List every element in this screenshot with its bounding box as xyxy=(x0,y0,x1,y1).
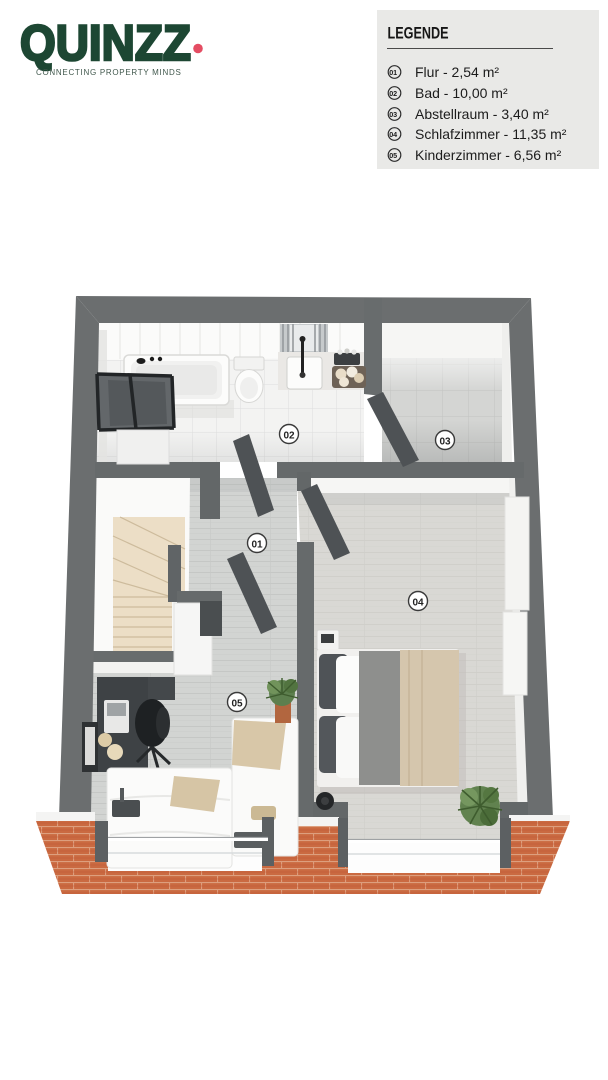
svg-text:05: 05 xyxy=(231,699,243,710)
svg-text:05: 05 xyxy=(389,151,397,160)
svg-text:Bad - 10,00 m²: Bad - 10,00 m² xyxy=(415,85,508,101)
svg-text:Kinderzimmer - 6,56 m²: Kinderzimmer - 6,56 m² xyxy=(415,147,562,163)
svg-text:02: 02 xyxy=(283,431,295,442)
svg-text:CONNECTING PROPERTY MINDS: CONNECTING PROPERTY MINDS xyxy=(36,68,182,77)
svg-text:LEGENDE: LEGENDE xyxy=(388,25,449,43)
svg-text:04: 04 xyxy=(412,598,424,609)
svg-text:QUINZZ: QUINZZ xyxy=(20,15,191,71)
svg-text:Abstellraum - 3,40 m²: Abstellraum - 3,40 m² xyxy=(415,106,549,122)
svg-text:01: 01 xyxy=(251,540,263,551)
svg-text:Flur - 2,54 m²: Flur - 2,54 m² xyxy=(415,64,499,80)
svg-text:Schlafzimmer - 11,35 m²: Schlafzimmer - 11,35 m² xyxy=(415,126,567,142)
svg-text:02: 02 xyxy=(389,89,397,98)
svg-text:03: 03 xyxy=(439,437,451,448)
svg-text:04: 04 xyxy=(389,130,397,139)
svg-text:01: 01 xyxy=(389,68,397,77)
svg-text:03: 03 xyxy=(389,110,397,119)
